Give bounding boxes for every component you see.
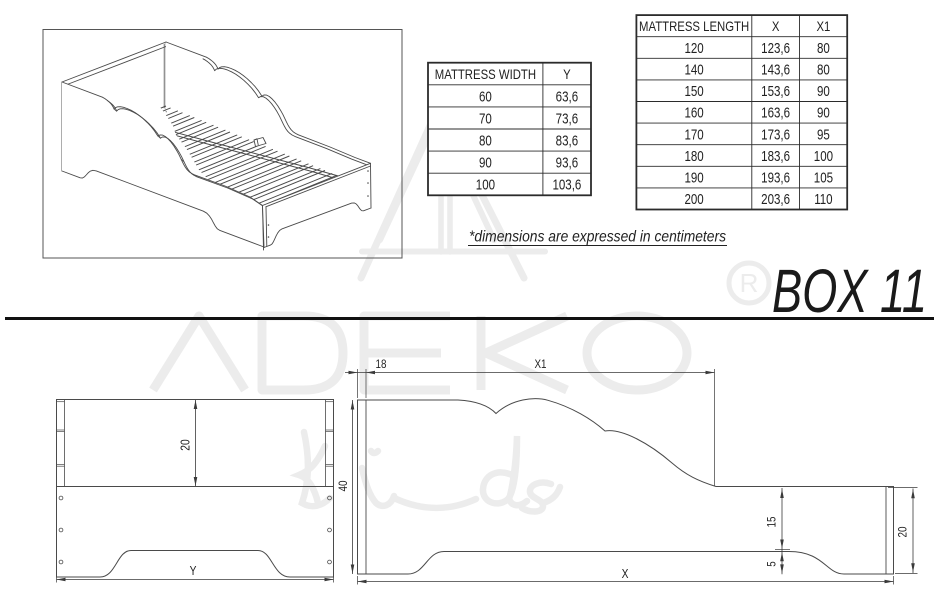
svg-text:93,6: 93,6 [556,154,578,171]
svg-text:MATTRESS WIDTH: MATTRESS WIDTH [435,66,536,83]
svg-text:153,6: 153,6 [761,83,790,100]
svg-text:40: 40 [337,481,350,492]
svg-text:143,6: 143,6 [761,61,790,78]
svg-text:180: 180 [684,148,703,165]
svg-text:73,6: 73,6 [556,110,578,127]
svg-text:Y: Y [190,565,197,578]
svg-text:15: 15 [766,517,779,528]
svg-text:BOX 11: BOX 11 [772,257,927,325]
svg-text:5: 5 [766,561,779,566]
svg-text:90: 90 [479,154,492,171]
svg-text:20: 20 [897,527,910,538]
svg-text:X1: X1 [534,358,546,371]
svg-text:170: 170 [684,126,703,143]
svg-text:203,6: 203,6 [761,191,790,208]
svg-text:110: 110 [814,191,832,208]
svg-text:160: 160 [684,104,703,121]
svg-text:200: 200 [684,191,703,208]
svg-text:60: 60 [479,88,492,105]
svg-text:X: X [622,568,629,581]
svg-text:80: 80 [817,61,830,78]
svg-text:X1: X1 [816,18,830,35]
svg-text:Y: Y [563,66,571,83]
svg-text:150: 150 [684,83,703,100]
svg-text:20: 20 [180,439,193,450]
svg-text:80: 80 [479,132,492,149]
svg-text:193,6: 193,6 [761,169,790,186]
svg-text:18: 18 [376,358,387,371]
svg-text:*dimensions are expressed in c: *dimensions are expressed in centimeters [469,229,726,246]
svg-text:100: 100 [814,148,833,165]
svg-text:83,6: 83,6 [556,132,578,149]
svg-text:95: 95 [817,126,830,143]
svg-text:103,6: 103,6 [552,176,581,193]
svg-text:173,6: 173,6 [761,126,790,143]
svg-text:90: 90 [817,104,830,121]
svg-text:183,6: 183,6 [761,148,790,165]
svg-text:MATTRESS LENGTH: MATTRESS LENGTH [639,18,749,35]
svg-text:X: X [772,18,780,35]
svg-text:120: 120 [684,40,703,57]
svg-text:190: 190 [684,169,703,186]
svg-text:80: 80 [817,40,830,57]
svg-text:90: 90 [817,83,830,100]
svg-text:163,6: 163,6 [761,104,790,121]
svg-text:140: 140 [684,61,703,78]
svg-text:123,6: 123,6 [761,40,790,57]
svg-text:105: 105 [814,169,833,186]
svg-text:63,6: 63,6 [556,88,578,105]
svg-text:70: 70 [479,110,492,127]
svg-text:100: 100 [476,176,495,193]
svg-text:R: R [740,268,759,298]
